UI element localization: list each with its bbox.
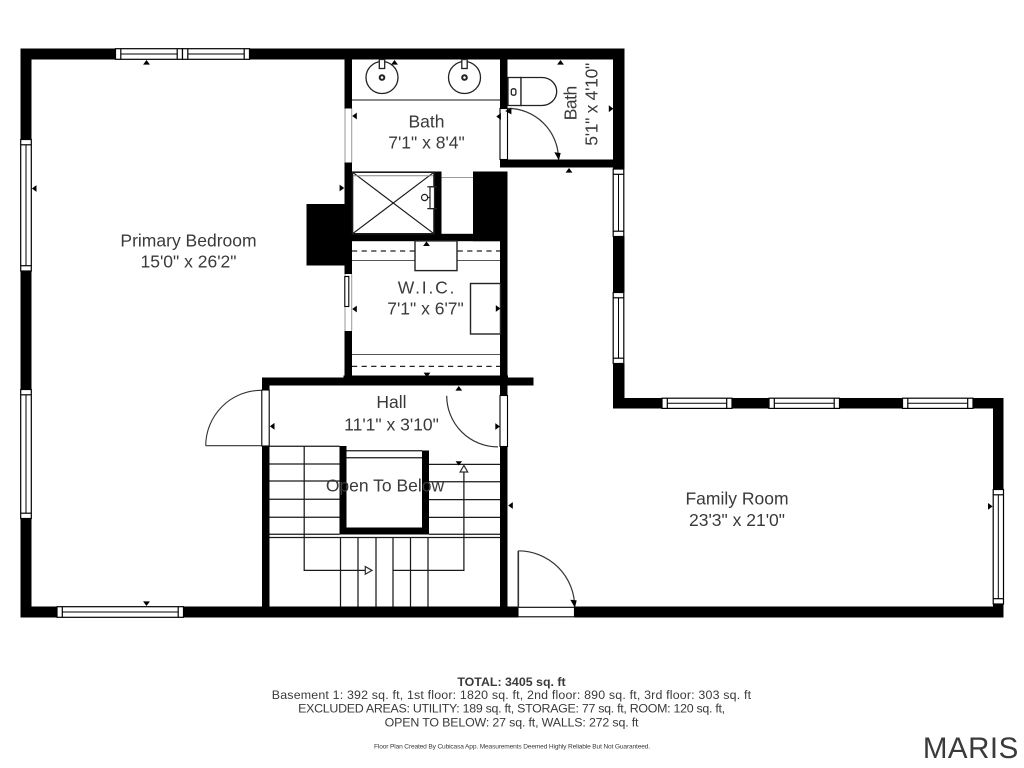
svg-text:15'0" x 26'2": 15'0" x 26'2" (141, 252, 237, 272)
svg-text:Family Room: Family Room (685, 489, 788, 509)
svg-text:7'1" x 6'7": 7'1" x 6'7" (387, 299, 464, 319)
svg-text:7'1" x 8'4": 7'1" x 8'4" (388, 133, 465, 153)
svg-text:EXCLUDED AREAS: UTILITY: 189 s: EXCLUDED AREAS: UTILITY: 189 sq. ft, STO… (298, 702, 725, 716)
svg-text:W.I.C.: W.I.C. (398, 278, 456, 298)
svg-text:Bath: Bath (560, 86, 580, 120)
svg-text:MARIS: MARIS (923, 732, 1019, 765)
svg-text:TOTAL: 3405 sq. ft: TOTAL: 3405 sq. ft (457, 675, 565, 689)
svg-text:11'1" x 3'10": 11'1" x 3'10" (344, 415, 439, 435)
svg-text:Open To Below: Open To Below (326, 476, 445, 496)
svg-text:Bath: Bath (409, 112, 445, 132)
svg-text:Basement 1: 392 sq. ft, 1st fl: Basement 1: 392 sq. ft, 1st floor: 1820 … (272, 688, 752, 702)
svg-text:5'1" x 4'10": 5'1" x 4'10" (581, 63, 601, 146)
svg-text:23'3" x 21'0": 23'3" x 21'0" (689, 510, 785, 530)
svg-text:Floor Plan Created By Cubicasa: Floor Plan Created By Cubicasa App. Meas… (374, 743, 650, 750)
svg-text:OPEN TO BELOW: 27 sq. ft, WALL: OPEN TO BELOW: 27 sq. ft, WALLS: 272 sq.… (385, 716, 639, 730)
svg-text:Primary Bedroom: Primary Bedroom (120, 231, 256, 251)
svg-text:Hall: Hall (376, 392, 406, 412)
